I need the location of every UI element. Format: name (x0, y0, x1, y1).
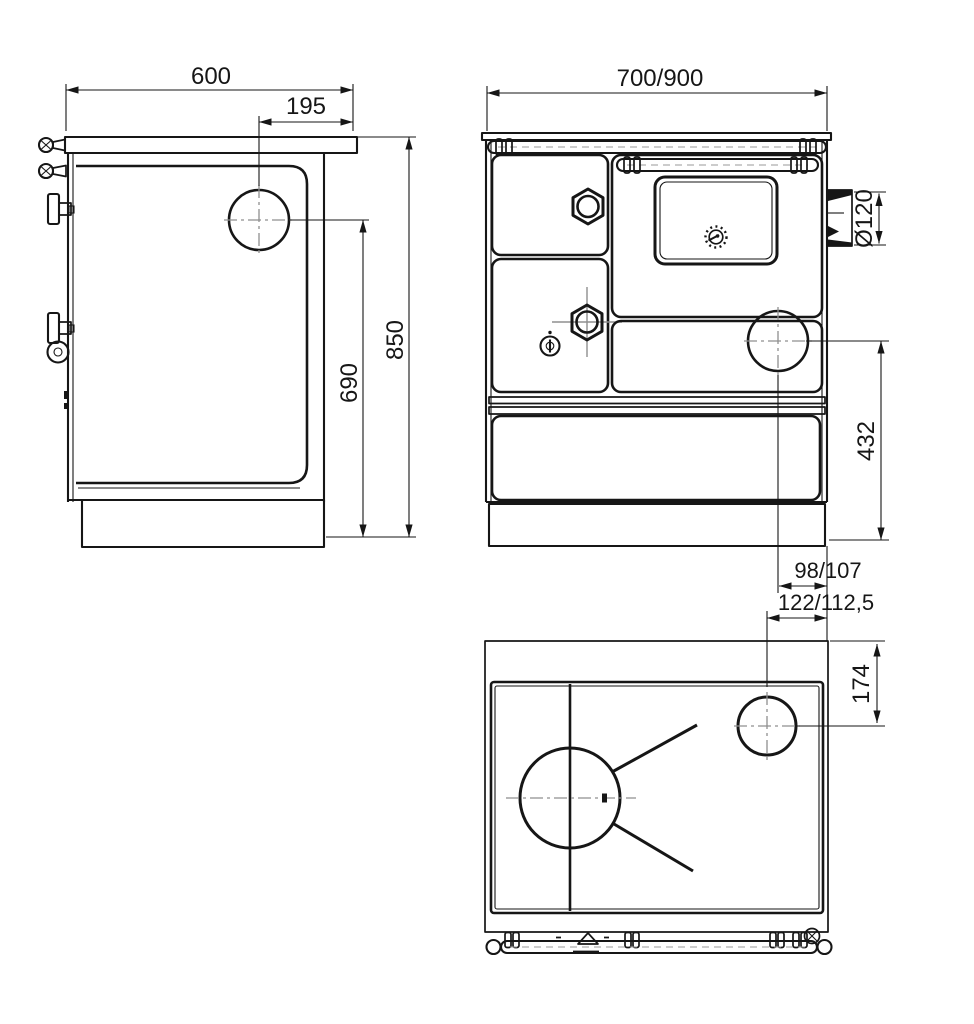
oven-window (655, 177, 777, 264)
dim-flue-offset-top-label: 122/112,5 (778, 590, 874, 615)
flue-outlet-stub (828, 190, 852, 247)
ash-panel (612, 321, 822, 392)
drawer-front (492, 416, 820, 500)
plinth-front (489, 504, 825, 546)
top-view: 174 (485, 641, 885, 954)
upper-firebox-door (492, 155, 608, 255)
dim-flue-height-label: 432 (853, 421, 880, 461)
dim-hotplate-offset-label: 195 (286, 93, 326, 120)
hinge-icon (48, 313, 74, 343)
plate-joint-line (612, 725, 697, 772)
dim-front-width-label: 700/900 (617, 65, 704, 92)
dim-hotplate-height-label: 690 (336, 363, 363, 403)
worktop-side (65, 137, 357, 153)
plate-joint-line (614, 824, 693, 871)
latch-icon (48, 342, 69, 363)
dim-flue-depth-label: 174 (848, 664, 875, 704)
side-view: 600 195 850 690 (39, 63, 416, 547)
dim-height-label: 850 (382, 320, 409, 360)
dim-flue-offset-front-label: 98/107 (794, 558, 861, 583)
rail-knob-icon (39, 164, 66, 178)
hex-knob-icon (573, 189, 603, 224)
dim-side-width-label: 600 (191, 63, 231, 90)
air-control-knob-icon (541, 331, 560, 356)
stove-dimension-drawing: 600 195 850 690 (0, 0, 974, 1024)
lower-firebox-door (492, 259, 608, 392)
worktop-front (482, 133, 831, 140)
latch-detail (578, 933, 598, 944)
side-door-panel (76, 166, 307, 483)
hinge-icon (48, 194, 74, 224)
technical-drawing-page: 600 195 850 690 (0, 0, 974, 1024)
rail-ball-end (487, 940, 501, 954)
towel-rail (488, 139, 826, 155)
rail-knob-icon (39, 138, 65, 152)
plinth-side (82, 500, 324, 547)
top-outline (485, 641, 828, 932)
oven-handle (617, 157, 818, 173)
front-view: Ø120 700/900 432 98/107 122/112,5 (482, 65, 889, 687)
dim-flue-diameter-label: Ø120 (851, 189, 878, 248)
thermometer-icon (706, 227, 727, 248)
rail-ball-end (818, 940, 832, 954)
